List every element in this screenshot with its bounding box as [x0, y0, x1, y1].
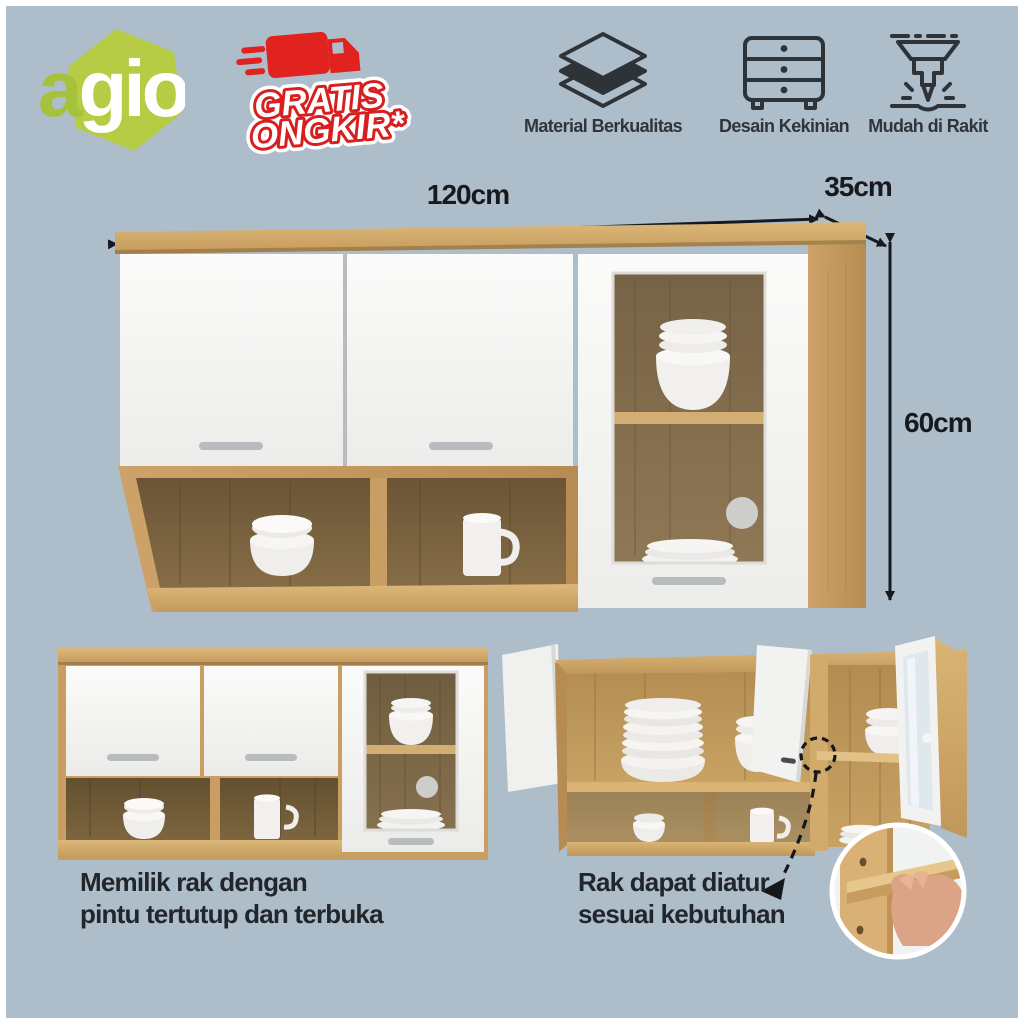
- layers-icon: [553, 30, 653, 112]
- caption-line: Rak dapat diatur: [578, 866, 785, 898]
- product-poster: agio GRATIS ONGKIR* GRATIS ONGKIR*: [0, 0, 1024, 1024]
- caption-line: pintu tertutup dan terbuka: [80, 898, 383, 930]
- caption-adjustable-shelf: Rak dapat diatur sesuai kebutuhan: [578, 866, 785, 930]
- feature-label: Material Berkualitas: [508, 116, 698, 137]
- free-shipping-badge: GRATIS ONGKIR* GRATIS ONGKIR*: [232, 20, 412, 155]
- feature-assembly: Mudah di Rakit: [833, 28, 1023, 137]
- width-dimension-label: 120cm: [427, 179, 509, 210]
- door-handle: [199, 442, 263, 450]
- door-handle: [429, 442, 493, 450]
- bowl-stack: [633, 813, 665, 842]
- door-handle: [652, 577, 726, 585]
- drill-icon: [882, 30, 974, 112]
- cabinet-illustration: [115, 222, 866, 612]
- open-glass-door: [895, 636, 941, 826]
- plate-stack: [621, 698, 705, 782]
- delivery-truck-icon: [237, 29, 360, 81]
- feature-label: Mudah di Rakit: [833, 116, 1023, 137]
- caption-line: sesuai kebutuhan: [578, 898, 785, 930]
- caption-closed-open-shelves: Memilik rak dengan pintu tertutup dan te…: [80, 866, 383, 930]
- bowl-stack: [123, 798, 165, 839]
- door-handle: [107, 754, 159, 761]
- agio-logo: agio: [35, 26, 185, 164]
- main-cabinet-render: 120cm 35cm 60cm: [90, 160, 990, 630]
- dresser-icon: [738, 34, 830, 112]
- caption-line: Memilik rak dengan: [80, 866, 383, 898]
- height-dimension-label: 60cm: [904, 407, 972, 438]
- bowl-stack: [250, 515, 314, 576]
- brand-text: agio: [38, 44, 185, 133]
- door-handle: [388, 838, 434, 845]
- door-handle: [245, 754, 297, 761]
- front-view-render: [50, 635, 500, 870]
- feature-material: Material Berkualitas: [508, 28, 698, 137]
- depth-dimension-label: 35cm: [824, 171, 892, 202]
